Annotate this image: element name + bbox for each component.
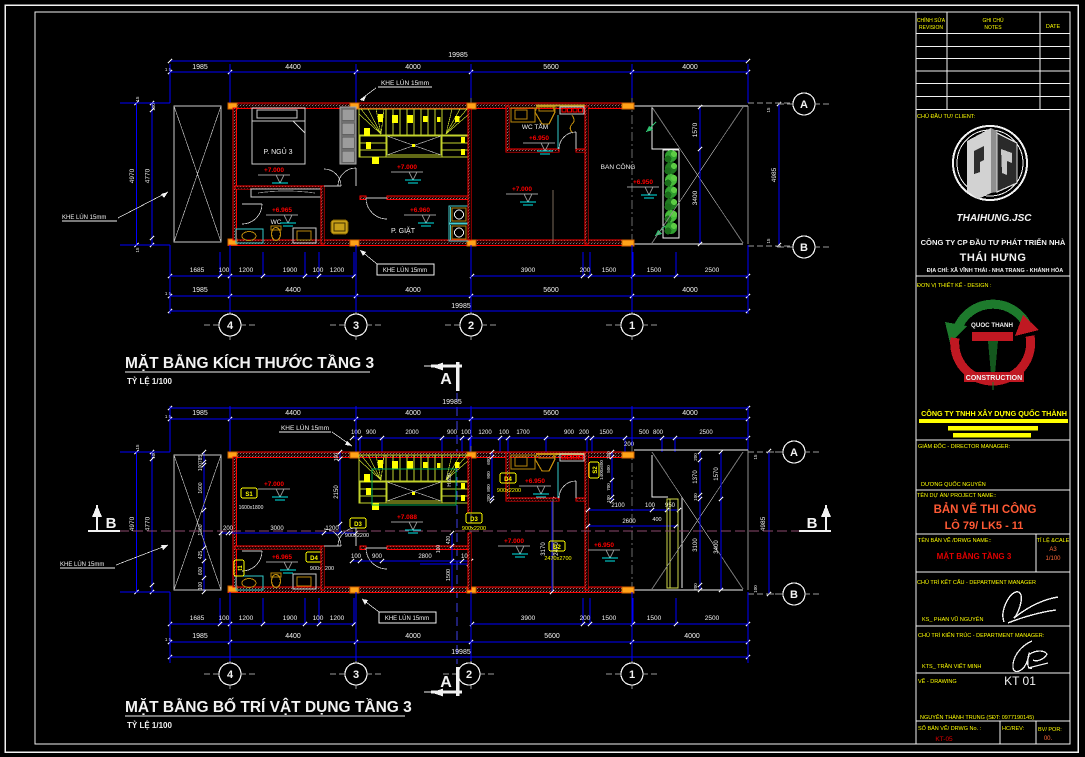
svg-text:BẢN VẼ THI CÔNG: BẢN VẼ THI CÔNG: [934, 503, 1037, 516]
svg-text:+6.950: +6.950: [529, 135, 549, 142]
svg-text:15: 15: [753, 454, 758, 460]
svg-text:1: 1: [629, 669, 635, 681]
svg-text:BV/ POR:: BV/ POR:: [1038, 727, 1062, 733]
svg-text:2000: 2000: [405, 430, 419, 436]
svg-text:KHE LÚN 15mm: KHE LÚN 15mm: [281, 423, 329, 432]
svg-text:420: 420: [446, 536, 452, 545]
svg-text:1200: 1200: [330, 615, 345, 622]
svg-text:CHỦ TRÌ KIẾN TRÚC - DEPARTMENT: CHỦ TRÌ KIẾN TRÚC - DEPARTMENT MANAGER:: [918, 632, 1045, 639]
svg-text:4000: 4000: [405, 410, 421, 417]
svg-text:GIÁM ĐỐC - DIRECTOR MANAGER:: GIÁM ĐỐC - DIRECTOR MANAGER:: [918, 443, 1011, 450]
svg-text:1685: 1685: [190, 267, 205, 274]
svg-text:100: 100: [198, 463, 204, 472]
svg-text:425: 425: [198, 551, 204, 560]
svg-text:100: 100: [436, 545, 442, 554]
svg-text:B: B: [807, 515, 818, 532]
svg-text:TÊN DỰ ÁN/ PROJECT NAME::: TÊN DỰ ÁN/ PROJECT NAME::: [917, 491, 997, 499]
svg-text:THAIHUNG.JSC: THAIHUNG.JSC: [956, 213, 1032, 224]
svg-text:+6.950: +6.950: [633, 179, 653, 186]
svg-text:100: 100: [693, 493, 698, 501]
svg-text:B: B: [106, 515, 117, 532]
svg-text:400: 400: [652, 517, 661, 523]
svg-text:3: 3: [353, 669, 359, 681]
svg-text:200: 200: [693, 453, 698, 461]
svg-text:1685: 1685: [190, 615, 205, 622]
svg-text:2: 2: [468, 320, 474, 332]
svg-text:4000: 4000: [405, 287, 421, 294]
svg-text:900x2200: 900x2200: [345, 533, 369, 539]
svg-text:100: 100: [219, 267, 230, 274]
svg-text:100: 100: [313, 615, 324, 622]
svg-text:1900: 1900: [283, 267, 298, 274]
svg-text:A: A: [440, 371, 452, 388]
svg-text:+6.950: +6.950: [525, 478, 545, 485]
svg-text:KT 01: KT 01: [1004, 674, 1036, 688]
svg-text:1600: 1600: [198, 482, 204, 493]
svg-text:19985: 19985: [451, 303, 471, 310]
svg-text:A3: A3: [1049, 547, 1057, 553]
svg-text:D4: D4: [504, 477, 512, 483]
svg-text:4: 4: [227, 669, 234, 681]
svg-text:4000: 4000: [682, 64, 698, 71]
svg-text:500: 500: [639, 430, 650, 436]
svg-text:+7.000: +7.000: [504, 538, 524, 545]
svg-text:GHI CHÚ: GHI CHÚ: [982, 17, 1004, 24]
svg-text:THÁI HƯNG: THÁI HƯNG: [960, 251, 1027, 264]
svg-text:15: 15: [135, 444, 140, 450]
svg-text:200: 200: [580, 615, 591, 622]
svg-text:1985: 1985: [192, 64, 208, 71]
svg-text:15: 15: [135, 96, 140, 102]
svg-text:200: 200: [693, 583, 698, 591]
svg-text:19985: 19985: [442, 399, 462, 406]
svg-text:4000: 4000: [684, 633, 700, 640]
svg-text:H.690: H.690: [447, 473, 453, 487]
svg-text:TỈ LỆ &CALE: TỈ LỆ &CALE: [1037, 536, 1070, 544]
svg-text:2150: 2150: [334, 485, 340, 499]
svg-text:100: 100: [198, 582, 204, 591]
svg-text:CÔNG TY CP ĐẦU TƯ PHÁT TRIỂN N: CÔNG TY CP ĐẦU TƯ PHÁT TRIỂN NHÀ: [921, 237, 1066, 247]
svg-text:3400: 3400: [714, 540, 720, 554]
svg-text:3400: 3400: [692, 190, 699, 205]
svg-text:100: 100: [645, 503, 656, 509]
svg-text:1985: 1985: [192, 410, 208, 417]
svg-text:ĐƠN VỊ THIẾT KẾ - DESIGN :: ĐƠN VỊ THIẾT KẾ - DESIGN :: [917, 282, 992, 289]
svg-text:900x2200: 900x2200: [497, 488, 521, 494]
svg-text:15: 15: [766, 107, 771, 113]
svg-text:4: 4: [227, 320, 234, 332]
svg-text:4970: 4970: [129, 516, 136, 531]
svg-text:2: 2: [466, 669, 472, 681]
svg-text:+7.000: +7.000: [512, 186, 532, 193]
svg-text:700: 700: [606, 483, 611, 491]
svg-text:1600x1800: 1600x1800: [239, 505, 264, 511]
svg-text:1200: 1200: [239, 267, 254, 274]
svg-text:CHỦ ĐẦU TƯ/ CLIENT:: CHỦ ĐẦU TƯ/ CLIENT:: [917, 113, 976, 120]
svg-text:TÊN BẢN VẼ /DRWG NAME::: TÊN BẢN VẼ /DRWG NAME::: [918, 536, 992, 544]
svg-text:1 5: 1 5: [165, 414, 172, 419]
svg-text:A: A: [790, 447, 798, 459]
svg-text:3170: 3170: [541, 542, 547, 556]
svg-text:4000: 4000: [682, 410, 698, 417]
svg-text:4985: 4985: [760, 516, 767, 531]
svg-text:A: A: [800, 99, 808, 111]
svg-text:100: 100: [151, 103, 156, 111]
svg-text:+7.088: +7.088: [397, 514, 417, 521]
svg-text:200: 200: [580, 267, 591, 274]
svg-text:QUOC THANH: QUOC THANH: [971, 322, 1013, 329]
svg-text:1200: 1200: [239, 615, 254, 622]
svg-text:19985: 19985: [448, 52, 468, 59]
svg-text:TỶ LỆ 1/100: TỶ LỆ 1/100: [127, 377, 172, 386]
svg-text:100: 100: [606, 495, 611, 503]
svg-text:200: 200: [606, 451, 611, 459]
svg-text:00.: 00.: [1044, 736, 1053, 742]
svg-text:600: 600: [198, 567, 204, 576]
svg-text:CÔNG TY TNHH XÂY DỰNG QUỐC THÀ: CÔNG TY TNHH XÂY DỰNG QUỐC THÀNH: [921, 408, 1067, 418]
svg-text:1570: 1570: [714, 467, 720, 481]
svg-text:800: 800: [653, 430, 664, 436]
svg-text:B: B: [800, 242, 808, 254]
svg-text:+6.965: +6.965: [272, 207, 292, 214]
svg-text:3900: 3900: [521, 615, 536, 622]
svg-text:4400: 4400: [285, 287, 301, 294]
svg-text:A: A: [440, 674, 452, 691]
svg-text:KHE LÚN 15mm: KHE LÚN 15mm: [60, 561, 104, 568]
svg-text:+7.000: +7.000: [264, 481, 284, 488]
svg-text:4770: 4770: [145, 516, 152, 531]
svg-text:+7.000: +7.000: [397, 164, 417, 171]
svg-text:4000: 4000: [405, 633, 421, 640]
svg-text:2500: 2500: [705, 615, 720, 622]
svg-text:D3: D3: [470, 517, 478, 523]
svg-text:1500: 1500: [602, 615, 617, 622]
svg-text:2600: 2600: [622, 519, 636, 525]
svg-text:1570: 1570: [692, 122, 699, 137]
svg-text:MẶT BẰNG TẦNG 3: MẶT BẰNG TẦNG 3: [937, 551, 1012, 561]
svg-text:3900: 3900: [521, 267, 536, 274]
svg-text:2800: 2800: [418, 554, 432, 560]
svg-text:+6.950: +6.950: [594, 542, 614, 549]
svg-text:WC TẮM: WC TẮM: [522, 122, 548, 131]
svg-text:P. NGỦ 3: P. NGỦ 3: [263, 147, 292, 156]
svg-text:KHE LÚN 15mm: KHE LÚN 15mm: [381, 78, 429, 87]
svg-text:BAN CÔNG: BAN CÔNG: [601, 162, 636, 171]
svg-text:100: 100: [334, 453, 340, 462]
svg-text:200: 200: [624, 442, 635, 448]
svg-text:4970: 4970: [129, 168, 136, 183]
svg-text:REVISION: REVISION: [919, 25, 943, 31]
svg-text:MẶT BẰNG BỐ TRÍ VẬT DỤNG TẦNG: MẶT BẰNG BỐ TRÍ VẬT DỤNG TẦNG 3: [125, 698, 412, 716]
svg-text:1/100: 1/100: [1045, 556, 1061, 562]
svg-text:CHỦ TRÌ KẾT CẤU - DEPARTMENT M: CHỦ TRÌ KẾT CẤU - DEPARTMENT MANAGER: [917, 579, 1036, 586]
svg-text:100: 100: [461, 430, 472, 436]
svg-text:D3: D3: [354, 522, 362, 528]
svg-text:4000: 4000: [682, 287, 698, 294]
svg-text:KHE LÚN 15mm: KHE LÚN 15mm: [62, 214, 106, 221]
svg-text:100: 100: [351, 554, 362, 560]
svg-text:+7.000: +7.000: [264, 167, 284, 174]
svg-text:DƯƠNG QUỐC NGUYÊN: DƯƠNG QUỐC NGUYÊN: [921, 480, 986, 488]
svg-text:+6.960: +6.960: [410, 207, 430, 214]
svg-text:500: 500: [606, 465, 611, 473]
svg-text:NOTES: NOTES: [984, 25, 1002, 31]
svg-text:1900: 1900: [283, 615, 298, 622]
svg-text:DATE: DATE: [1046, 24, 1061, 30]
svg-text:2470x2700: 2470x2700: [544, 556, 571, 562]
svg-text:900: 900: [447, 430, 458, 436]
svg-text:1200: 1200: [330, 267, 345, 274]
svg-text:2100: 2100: [611, 503, 625, 509]
svg-text:200: 200: [579, 430, 590, 436]
svg-text:SỐ BẢN VẼ/ DRWG No. :: SỐ BẢN VẼ/ DRWG No. :: [918, 725, 982, 732]
svg-text:4770: 4770: [145, 168, 152, 183]
svg-text:4985: 4985: [771, 167, 778, 182]
svg-text:3: 3: [353, 320, 359, 332]
svg-text:5600: 5600: [543, 64, 559, 71]
svg-text:1370: 1370: [693, 470, 699, 484]
svg-text:1500: 1500: [446, 569, 452, 581]
svg-text:1500: 1500: [599, 430, 613, 436]
svg-text:KHE LÚN 15mm: KHE LÚN 15mm: [385, 615, 429, 622]
svg-text:1 5: 1 5: [165, 67, 172, 72]
svg-text:1985: 1985: [192, 633, 208, 640]
svg-text:KTS_ TRẦN VIẾT MINH: KTS_ TRẦN VIẾT MINH: [922, 663, 981, 670]
svg-text:KS_ PHAN VŨ NGUYÊN: KS_ PHAN VŨ NGUYÊN: [922, 615, 983, 623]
svg-text:MẶT BẰNG KÍCH THƯỚC TẦNG 3: MẶT BẰNG KÍCH THƯỚC TẦNG 3: [125, 354, 374, 372]
svg-text:VẼ - DRAWING: VẼ - DRAWING: [918, 678, 957, 685]
svg-text:1 5: 1 5: [165, 637, 172, 642]
svg-text:D2: D2: [553, 545, 561, 551]
svg-text:NGUYỄN THÀNH TRUNG (SĐT: 09771: NGUYỄN THÀNH TRUNG (SĐT: 0977190145): [920, 714, 1034, 721]
svg-text:2500: 2500: [699, 430, 713, 436]
svg-text:t1: t1: [238, 565, 244, 571]
svg-text:KHE LÚN 15mm: KHE LÚN 15mm: [383, 267, 427, 274]
svg-text:15: 15: [135, 247, 140, 253]
svg-text:4000: 4000: [405, 64, 421, 71]
svg-text:KT-05: KT-05: [935, 736, 953, 743]
svg-text:800: 800: [486, 484, 491, 492]
svg-text:100: 100: [753, 585, 758, 593]
svg-text:1500: 1500: [647, 615, 662, 622]
svg-text:TỶ LỆ 1/100: TỶ LỆ 1/100: [127, 721, 172, 730]
svg-text:900: 900: [366, 430, 377, 436]
svg-text:CHỈNH SỬA: CHỈNH SỬA: [917, 17, 946, 24]
svg-text:785: 785: [198, 455, 204, 464]
svg-text:1400x600: 1400x600: [599, 460, 604, 480]
svg-text:1985: 1985: [192, 287, 208, 294]
svg-text:4400: 4400: [285, 64, 301, 71]
svg-text:ĐỊA CHỈ: XÃ VĨNH THÁI - NHA TR: ĐỊA CHỈ: XÃ VĨNH THÁI - NHA TRANG - KHÁN…: [927, 266, 1064, 274]
svg-text:5600: 5600: [544, 633, 560, 640]
svg-text:D4: D4: [310, 556, 318, 562]
svg-text:100: 100: [499, 430, 510, 436]
svg-text:900: 900: [372, 554, 383, 560]
svg-text:P. GIẶT: P. GIẶT: [391, 226, 416, 235]
svg-text:1: 1: [629, 320, 635, 332]
svg-text:19985: 19985: [451, 649, 471, 656]
svg-text:100: 100: [219, 615, 230, 622]
svg-text:1500: 1500: [602, 267, 617, 274]
svg-text:B: B: [790, 589, 798, 601]
svg-text:1200: 1200: [478, 430, 492, 436]
svg-text:200: 200: [486, 494, 491, 502]
svg-text:4400: 4400: [285, 410, 301, 417]
svg-text:1700: 1700: [516, 430, 530, 436]
svg-text:1 5: 1 5: [165, 291, 172, 296]
svg-text:+6.965: +6.965: [272, 554, 292, 561]
svg-text:900: 900: [486, 471, 491, 479]
svg-text:HC/REV:: HC/REV:: [1002, 726, 1025, 732]
svg-text:4400: 4400: [285, 633, 301, 640]
svg-text:LÔ 79/ LK5 - 11: LÔ 79/ LK5 - 11: [945, 519, 1024, 532]
svg-text:5600: 5600: [543, 287, 559, 294]
svg-text:2500: 2500: [705, 267, 720, 274]
svg-text:600: 600: [486, 457, 491, 465]
svg-text:S1: S1: [245, 492, 253, 498]
svg-text:CONSTRUCTION: CONSTRUCTION: [966, 375, 1022, 382]
svg-text:1500: 1500: [647, 267, 662, 274]
svg-text:15: 15: [766, 238, 771, 244]
svg-text:5600: 5600: [543, 410, 559, 417]
svg-text:900: 900: [564, 430, 575, 436]
svg-text:3100: 3100: [693, 538, 699, 552]
svg-text:100: 100: [313, 267, 324, 274]
